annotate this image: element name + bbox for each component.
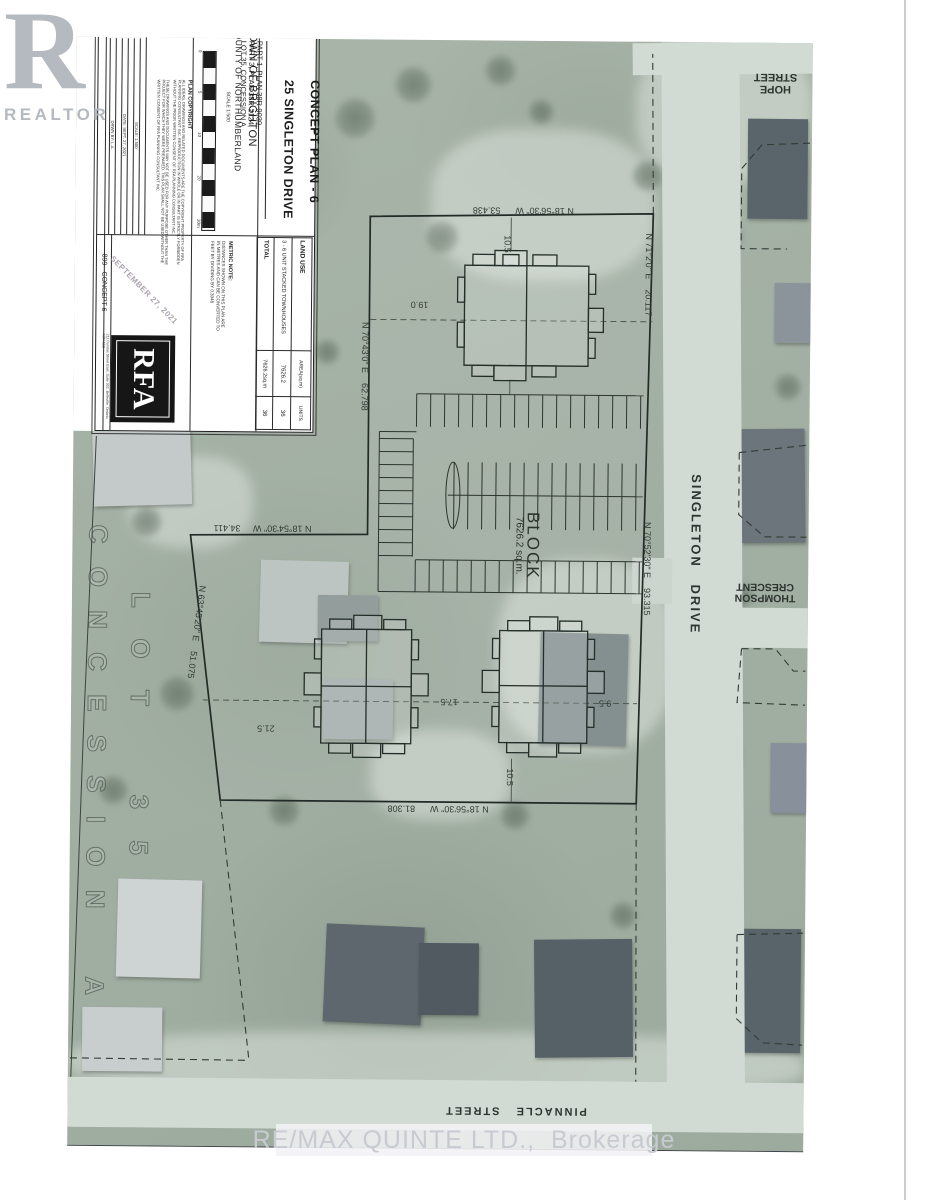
bearing-south: N 18°56'30" W 81.308	[328, 802, 548, 814]
street-label-pinnacle: PINNACLE STREET	[435, 1102, 595, 1117]
block-label: BLOCK 7626.2 sq.m.	[510, 486, 545, 606]
aerial-photo-scan: HOPESTREET SINGLETON DRIVE THOMPSONCRESC…	[67, 37, 813, 1152]
bearing-east-upper: N 71°2'0" E 20.117	[642, 200, 653, 350]
plan-title: CONCEPT PLAN - 6 25 SINGLETON DRIVE PART…	[257, 41, 317, 236]
realtor-wordmark: REALTOR	[4, 105, 116, 125]
scale-bar	[201, 51, 217, 231]
brokerage-watermark: RE/MAX QUINTE LTD., Brokerage	[276, 1124, 652, 1156]
bearing-west: N 70°43'0" E 62.798	[358, 281, 369, 451]
land-use-table: LAND USE AREA(sq.m) UNITS 3 - 6 UNIT STA…	[255, 237, 313, 430]
street-label-singleton: SINGLETON DRIVE	[687, 476, 704, 632]
realtor-logo: R REALTOR	[4, 0, 116, 130]
lot-35-label: L O T 3 5	[122, 549, 155, 909]
plan-copyright-note: PLAN COPYRIGHT ALL IDEAS, DRAWINGS AND R…	[146, 79, 192, 269]
bearing-inner-west: N 18°54'30" W 34.411	[188, 522, 338, 533]
title-block: DRWN BY: L.A. DATE: SEPT. 27, 2021 SCALE…	[94, 37, 316, 433]
rfa-firm-logo: RFA	[110, 335, 175, 423]
metric-note: METRIC NOTE: DISTANCES SHOWN ON THIS PLA…	[207, 241, 234, 333]
job-number: 899 - CONCEPT 6	[99, 238, 109, 328]
dimension-left-setback: 21.5	[246, 723, 286, 732]
bearing-east-lower: N 70°52'30" E 93.315	[641, 489, 652, 649]
dimension-bottom-setback: 10.5	[505, 757, 514, 797]
street-label-thompson: THOMPSONCRESCENT	[720, 579, 810, 604]
dimension-between-buildings: 17.5	[429, 697, 469, 706]
street-label-hope: HOPESTREET	[740, 69, 810, 96]
firm-address: 211 Dundas Street East, Suite 302, Belle…	[102, 334, 108, 422]
realtor-r-icon: R	[4, 0, 116, 103]
paper-edge-line	[904, 0, 906, 1200]
dimension-right-setback: 9.5	[585, 698, 625, 707]
dimension-top-setback: 10.5	[502, 224, 511, 264]
concession-a-label: C O N C E S S I O N A	[79, 539, 113, 989]
dimension-west-setback: 19.0	[399, 300, 439, 309]
scanned-concept-plan-page: HOPESTREET SINGLETON DRIVE THOMPSONCRESC…	[0, 0, 928, 1200]
bearing-north: N 18°56'30" W 53.438	[413, 204, 633, 216]
